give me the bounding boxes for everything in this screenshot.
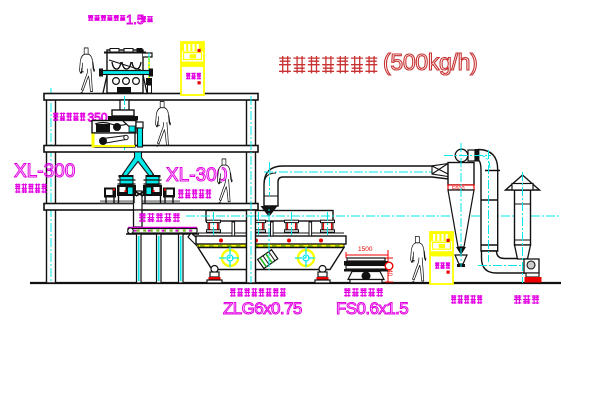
svg-text:1500: 1500 — [358, 246, 373, 253]
svg-text:(500kg/h): (500kg/h) — [383, 49, 477, 75]
svg-text:ZLG6x0.75: ZLG6x0.75 — [223, 299, 302, 318]
svg-text:FS0.6x1.5: FS0.6x1.5 — [336, 299, 408, 318]
svg-text:XL-300: XL-300 — [14, 161, 75, 182]
